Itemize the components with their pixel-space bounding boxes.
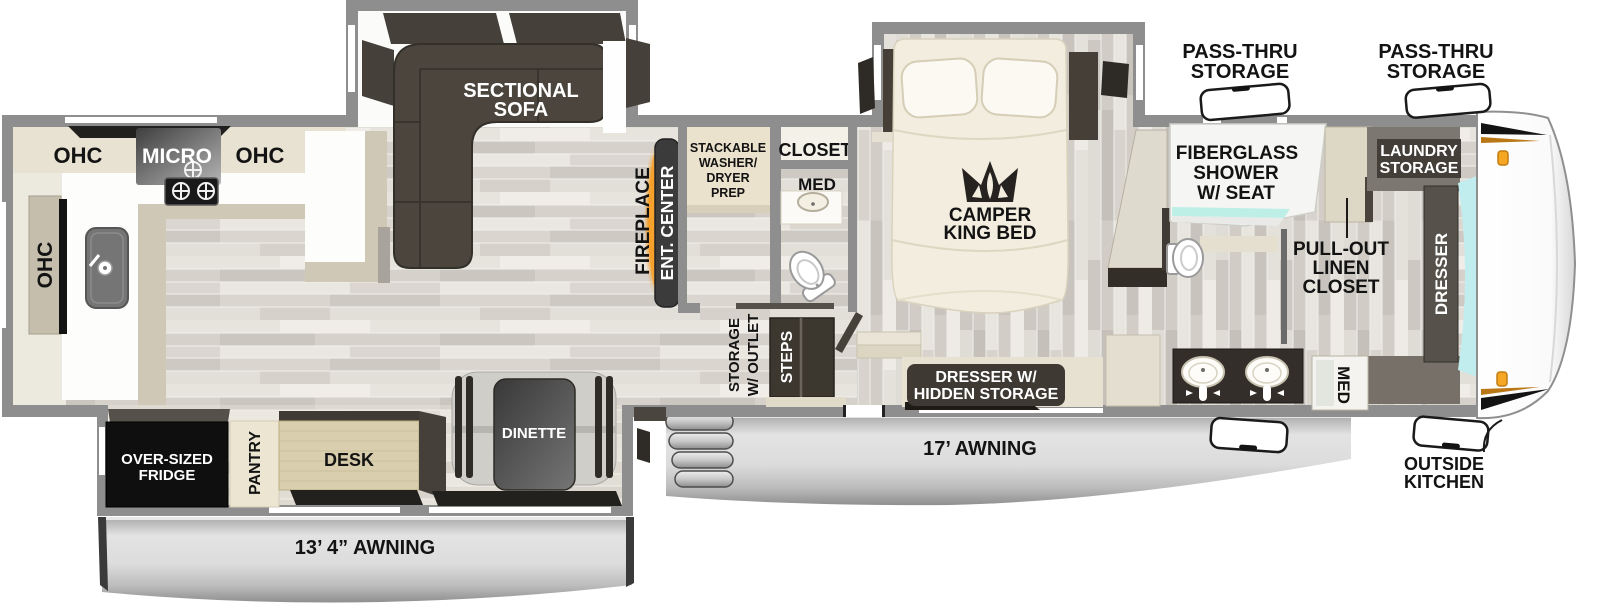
svg-text:ENT. CENTER: ENT. CENTER — [657, 165, 677, 280]
svg-text:W/ SEAT: W/ SEAT — [1197, 183, 1275, 204]
svg-text:PREP: PREP — [711, 186, 745, 200]
svg-text:PANTRY: PANTRY — [247, 431, 264, 495]
svg-text:FIBERGLASS: FIBERGLASS — [1176, 143, 1298, 164]
svg-text:PASS-THRU: PASS-THRU — [1378, 41, 1493, 63]
svg-text:STACKABLE: STACKABLE — [690, 141, 766, 155]
svg-text:OHC: OHC — [54, 143, 103, 168]
svg-text:OUTSIDE: OUTSIDE — [1404, 454, 1484, 474]
svg-text:LINEN: LINEN — [1313, 258, 1370, 279]
svg-text:PASS-THRU: PASS-THRU — [1182, 41, 1297, 63]
svg-text:WASHER/: WASHER/ — [699, 156, 758, 170]
svg-text:DINETTE: DINETTE — [502, 425, 566, 442]
svg-text:W/ OUTLET: W/ OUTLET — [745, 314, 762, 397]
svg-text:CLOSET: CLOSET — [778, 140, 851, 160]
svg-text:FRIDGE: FRIDGE — [139, 467, 196, 484]
svg-text:KING BED: KING BED — [944, 223, 1037, 244]
svg-text:STORAGE: STORAGE — [1191, 61, 1290, 83]
svg-text:17’ AWNING: 17’ AWNING — [923, 438, 1037, 460]
svg-text:MED: MED — [1334, 366, 1353, 404]
svg-text:STORAGE: STORAGE — [726, 318, 743, 392]
svg-text:OVER-SIZED: OVER-SIZED — [121, 451, 213, 468]
svg-text:OHC: OHC — [34, 242, 57, 289]
svg-text:DRESSER W/: DRESSER W/ — [935, 369, 1037, 386]
svg-text:DRYER: DRYER — [706, 171, 749, 185]
svg-text:SOFA: SOFA — [494, 99, 548, 121]
svg-text:LAUNDRY: LAUNDRY — [1380, 143, 1458, 160]
svg-text:STORAGE: STORAGE — [1387, 61, 1486, 83]
svg-text:DRESSER: DRESSER — [1432, 233, 1451, 315]
svg-text:HIDDEN STORAGE: HIDDEN STORAGE — [914, 386, 1059, 403]
svg-text:KITCHEN: KITCHEN — [1404, 472, 1484, 492]
svg-text:13’ 4” AWNING: 13’ 4” AWNING — [295, 537, 435, 559]
svg-text:SHOWER: SHOWER — [1193, 163, 1279, 184]
svg-text:MICRO: MICRO — [142, 145, 212, 168]
svg-text:CLOSET: CLOSET — [1302, 277, 1379, 298]
svg-text:PULL-OUT: PULL-OUT — [1293, 239, 1389, 260]
svg-text:DESK: DESK — [324, 450, 374, 470]
svg-text:OHC: OHC — [236, 143, 285, 168]
svg-text:STEPS: STEPS — [779, 330, 796, 383]
svg-text:STORAGE: STORAGE — [1380, 160, 1459, 177]
svg-text:FIREPLACE: FIREPLACE — [633, 167, 654, 275]
